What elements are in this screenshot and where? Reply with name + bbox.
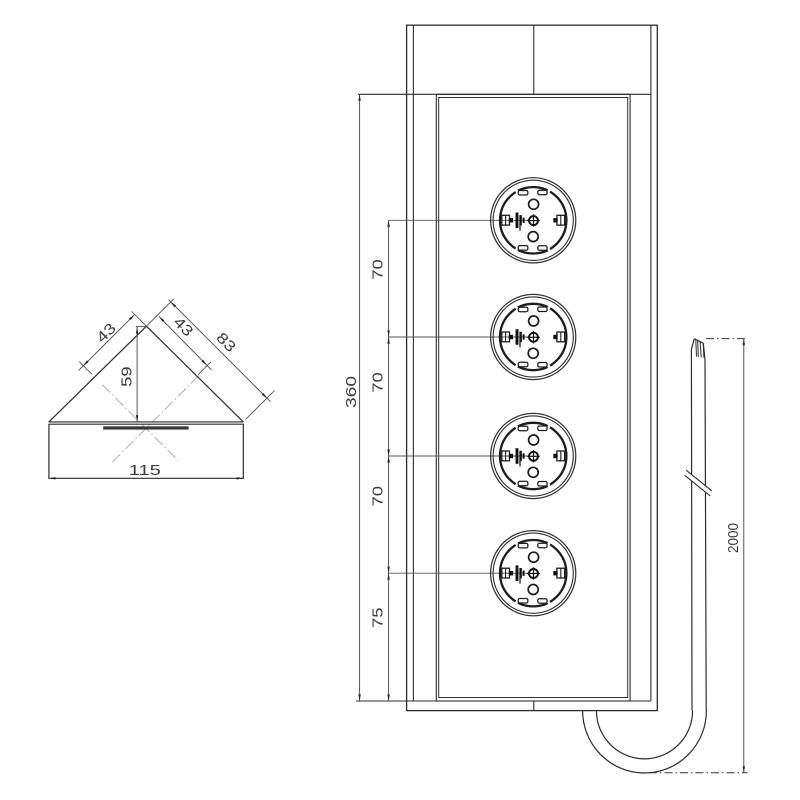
svg-text:59: 59: [119, 366, 136, 387]
svg-text:2000: 2000: [725, 523, 742, 553]
svg-text:360: 360: [343, 376, 360, 408]
svg-text:70: 70: [369, 259, 386, 280]
svg-text:75: 75: [369, 608, 386, 629]
svg-text:70: 70: [369, 486, 386, 507]
svg-text:70: 70: [369, 372, 386, 393]
svg-text:115: 115: [129, 462, 161, 479]
